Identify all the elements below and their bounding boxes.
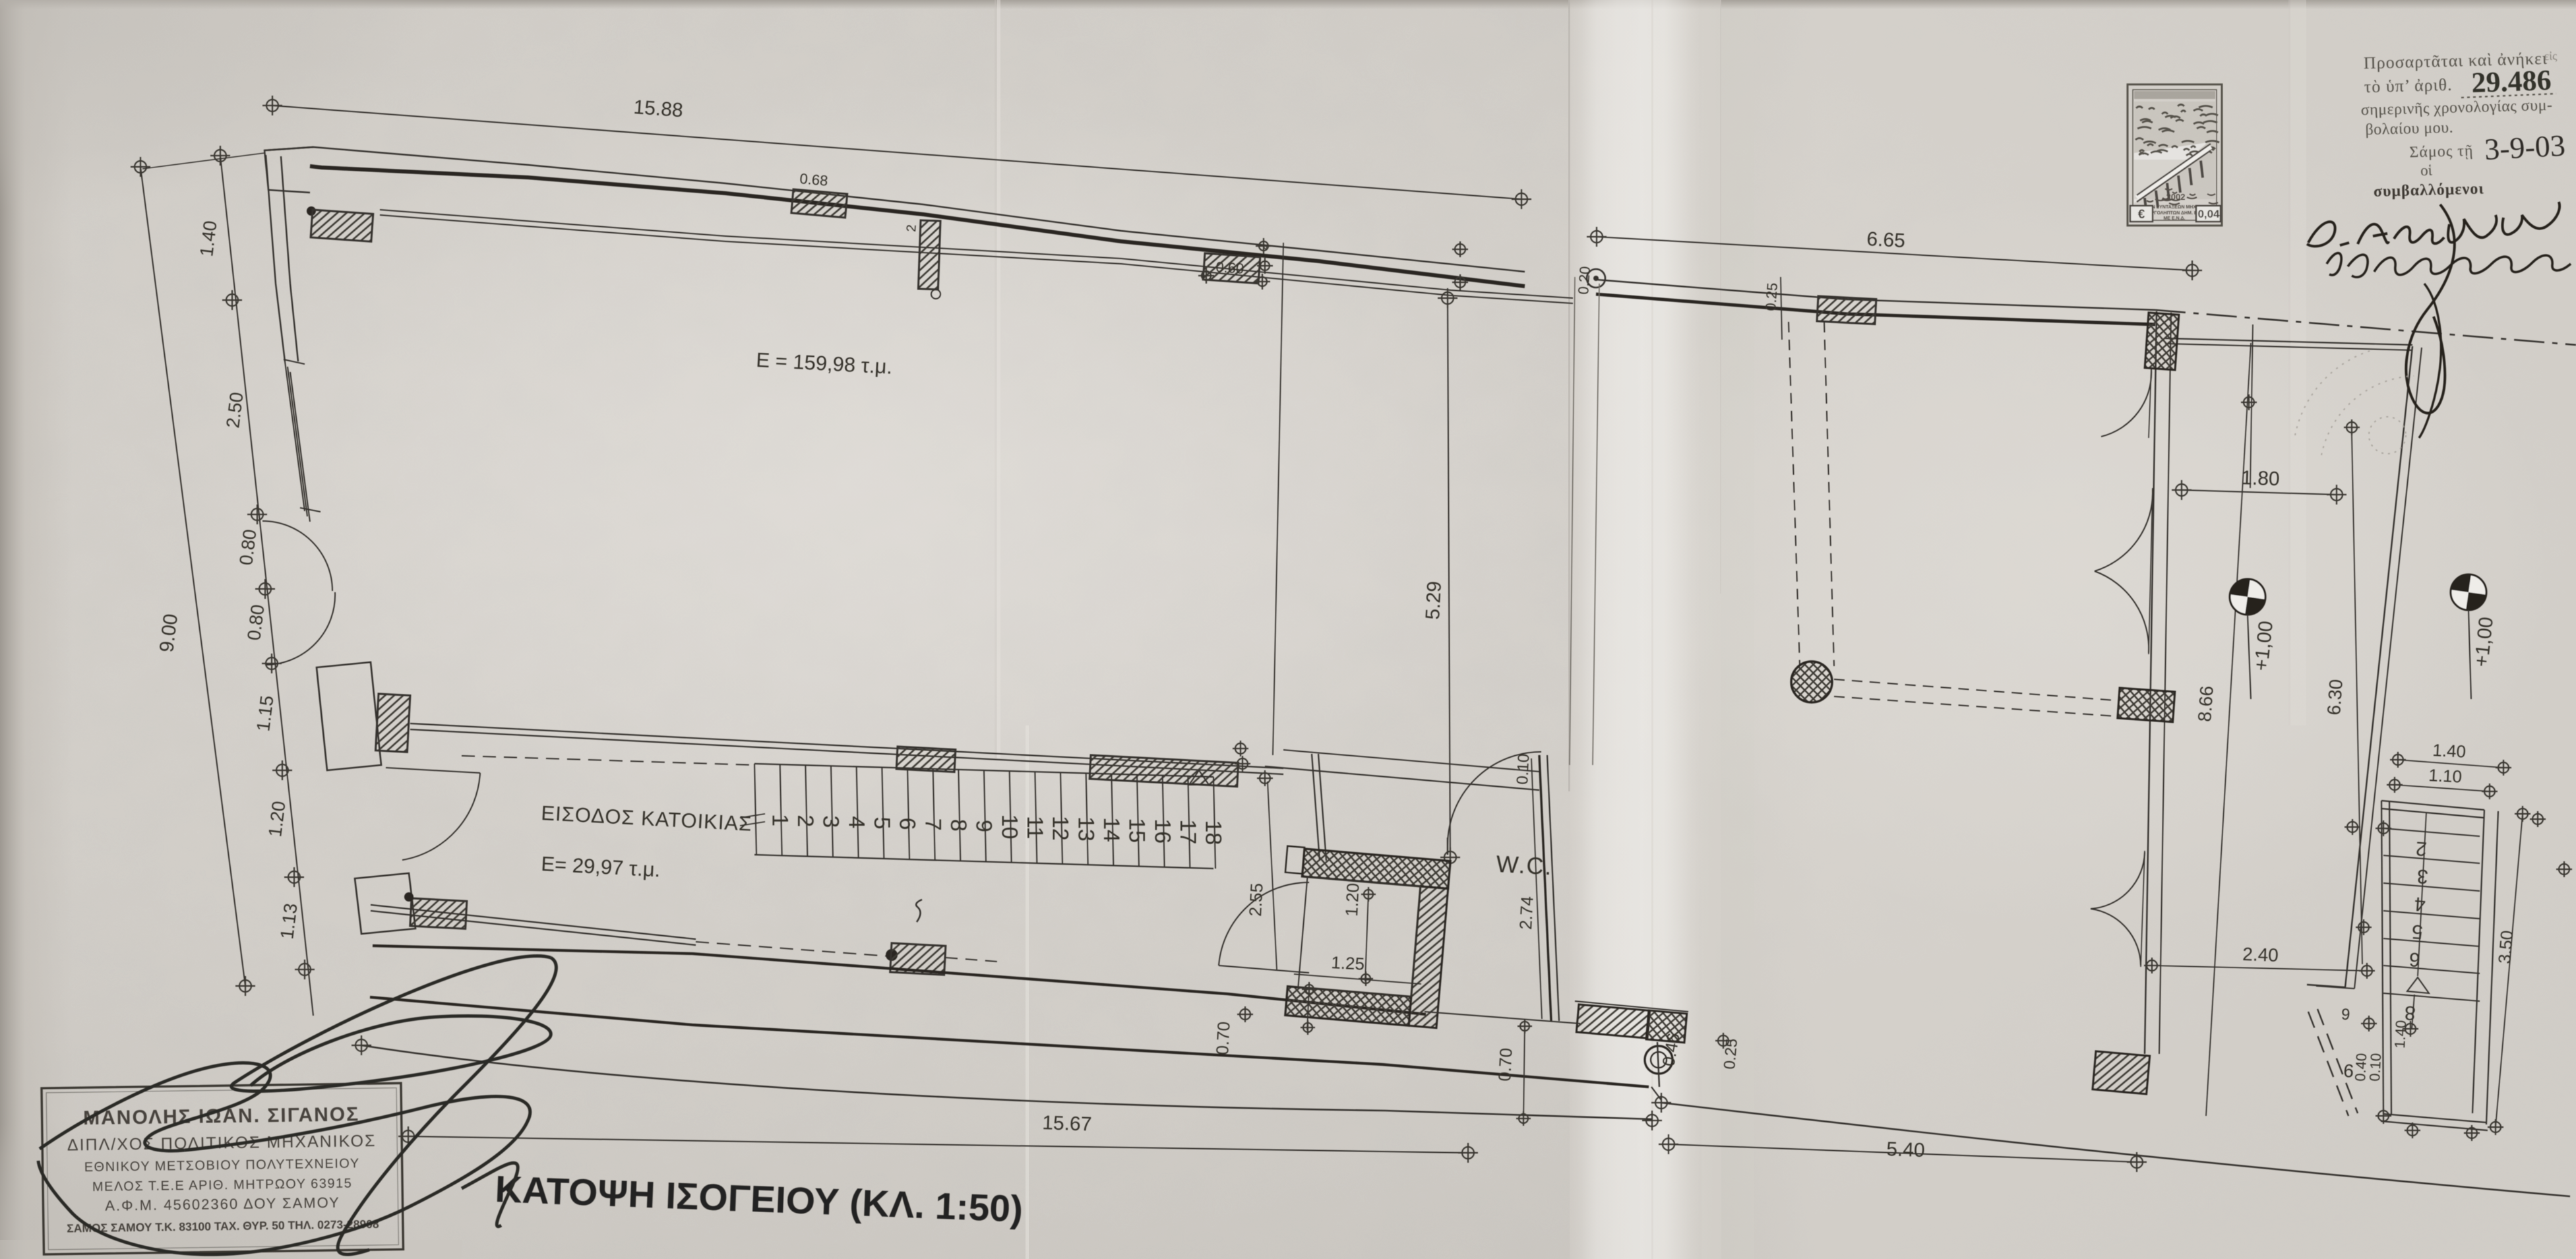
- svg-text:1.15: 1.15: [253, 694, 277, 733]
- svg-text:0.80: 0.80: [235, 528, 260, 567]
- svg-text:0.68: 0.68: [799, 170, 829, 189]
- svg-text:1.40: 1.40: [2391, 1020, 2409, 1049]
- svg-text:3: 3: [818, 815, 843, 828]
- svg-text:5.40: 5.40: [1886, 1138, 1926, 1161]
- svg-text:βολαίου μου.: βολαίου μου.: [2365, 119, 2453, 138]
- svg-text:10: 10: [997, 814, 1022, 840]
- svg-text:0.25: 0.25: [1721, 1038, 1741, 1070]
- svg-text:0.70: 0.70: [1494, 1047, 1516, 1082]
- svg-text:2.55: 2.55: [1245, 882, 1267, 917]
- svg-text:2.40: 2.40: [2242, 944, 2279, 966]
- svg-text:0.60: 0.60: [1215, 259, 1244, 277]
- svg-text:0.10: 0.10: [1514, 753, 1533, 785]
- svg-text:4: 4: [843, 816, 869, 828]
- svg-text:Α.Φ.Μ. 45602360 ΔΟΥ ΣΑΜΟΥ: Α.Φ.Μ. 45602360 ΔΟΥ ΣΑΜΟΥ: [105, 1194, 340, 1214]
- svg-text:5.29: 5.29: [1422, 580, 1446, 620]
- svg-text:εἰς: εἰς: [2544, 49, 2557, 63]
- svg-text:1.13: 1.13: [276, 902, 301, 940]
- svg-text:1.20: 1.20: [264, 800, 289, 838]
- svg-text:οἱ: οἱ: [2420, 162, 2433, 178]
- svg-text:11: 11: [1022, 816, 1047, 839]
- svg-text:0.70: 0.70: [1212, 1021, 1234, 1055]
- svg-text:1.20: 1.20: [1341, 882, 1363, 917]
- svg-text:2.74: 2.74: [1516, 896, 1537, 930]
- svg-text:συμβαλλόμενοι: συμβαλλόμενοι: [2374, 180, 2484, 200]
- svg-text:5: 5: [2411, 920, 2424, 942]
- svg-text:1.80: 1.80: [2241, 467, 2281, 490]
- svg-text:€: €: [2138, 208, 2145, 222]
- svg-text:ΜΑΝΟΛΗΣ ΙΩΑΝ. ΣΙΓΑΝΟΣ: ΜΑΝΟΛΗΣ ΙΩΑΝ. ΣΙΓΑΝΟΣ: [83, 1103, 359, 1129]
- svg-text:1.10: 1.10: [2428, 765, 2463, 787]
- svg-text:6.65: 6.65: [1866, 228, 1906, 252]
- svg-text:7: 7: [920, 818, 945, 831]
- svg-text:0.20: 0.20: [1575, 266, 1593, 295]
- svg-text:0,04: 0,04: [2197, 208, 2220, 220]
- svg-text:ΜΕ Ε.Ν.Δ.: ΜΕ Ε.Ν.Δ.: [2163, 216, 2185, 221]
- svg-text:15.67: 15.67: [1042, 1112, 1092, 1136]
- svg-text:8: 8: [946, 819, 971, 832]
- svg-text:Σάμος τῇ: Σάμος τῇ: [2409, 142, 2474, 162]
- svg-text:2: 2: [2415, 837, 2428, 859]
- svg-text:9.00: 9.00: [156, 613, 182, 654]
- svg-text:4: 4: [2414, 892, 2426, 915]
- svg-text:1.40: 1.40: [2432, 740, 2467, 762]
- svg-text:2: 2: [793, 814, 818, 827]
- svg-text:2.50: 2.50: [222, 391, 247, 429]
- svg-text:17: 17: [1175, 819, 1200, 844]
- svg-text:0.80: 0.80: [243, 603, 268, 642]
- svg-text:W.C.: W.C.: [1496, 850, 1554, 880]
- svg-text:18: 18: [1201, 820, 1226, 845]
- svg-text:6.30: 6.30: [2323, 679, 2346, 716]
- svg-text:9: 9: [971, 820, 997, 832]
- svg-text:16: 16: [1150, 818, 1175, 844]
- svg-text:8.66: 8.66: [2194, 685, 2217, 723]
- svg-text:15.88: 15.88: [633, 96, 684, 121]
- svg-text:3.50: 3.50: [2494, 929, 2517, 964]
- svg-text:1: 1: [767, 814, 792, 826]
- svg-text:6: 6: [2341, 1004, 2350, 1023]
- svg-text:τὸ ὑπ’ ἀριθ.: τὸ ὑπ’ ἀριθ.: [2364, 75, 2452, 96]
- svg-text:6: 6: [895, 818, 920, 830]
- svg-text:0.10: 0.10: [2366, 1053, 2384, 1082]
- svg-text:15: 15: [1124, 818, 1150, 843]
- svg-text:1.25: 1.25: [1331, 952, 1365, 974]
- svg-text:13: 13: [1073, 816, 1098, 842]
- svg-text:0.25: 0.25: [1762, 282, 1781, 311]
- svg-text:12: 12: [1048, 816, 1073, 841]
- svg-text:5: 5: [869, 817, 894, 830]
- svg-text:2002: 2002: [2166, 192, 2186, 202]
- svg-text:2: 2: [904, 224, 919, 233]
- svg-text:1.40: 1.40: [196, 220, 220, 258]
- svg-text:14: 14: [1099, 817, 1124, 842]
- svg-text:3-9-03: 3-9-03: [2484, 129, 2566, 166]
